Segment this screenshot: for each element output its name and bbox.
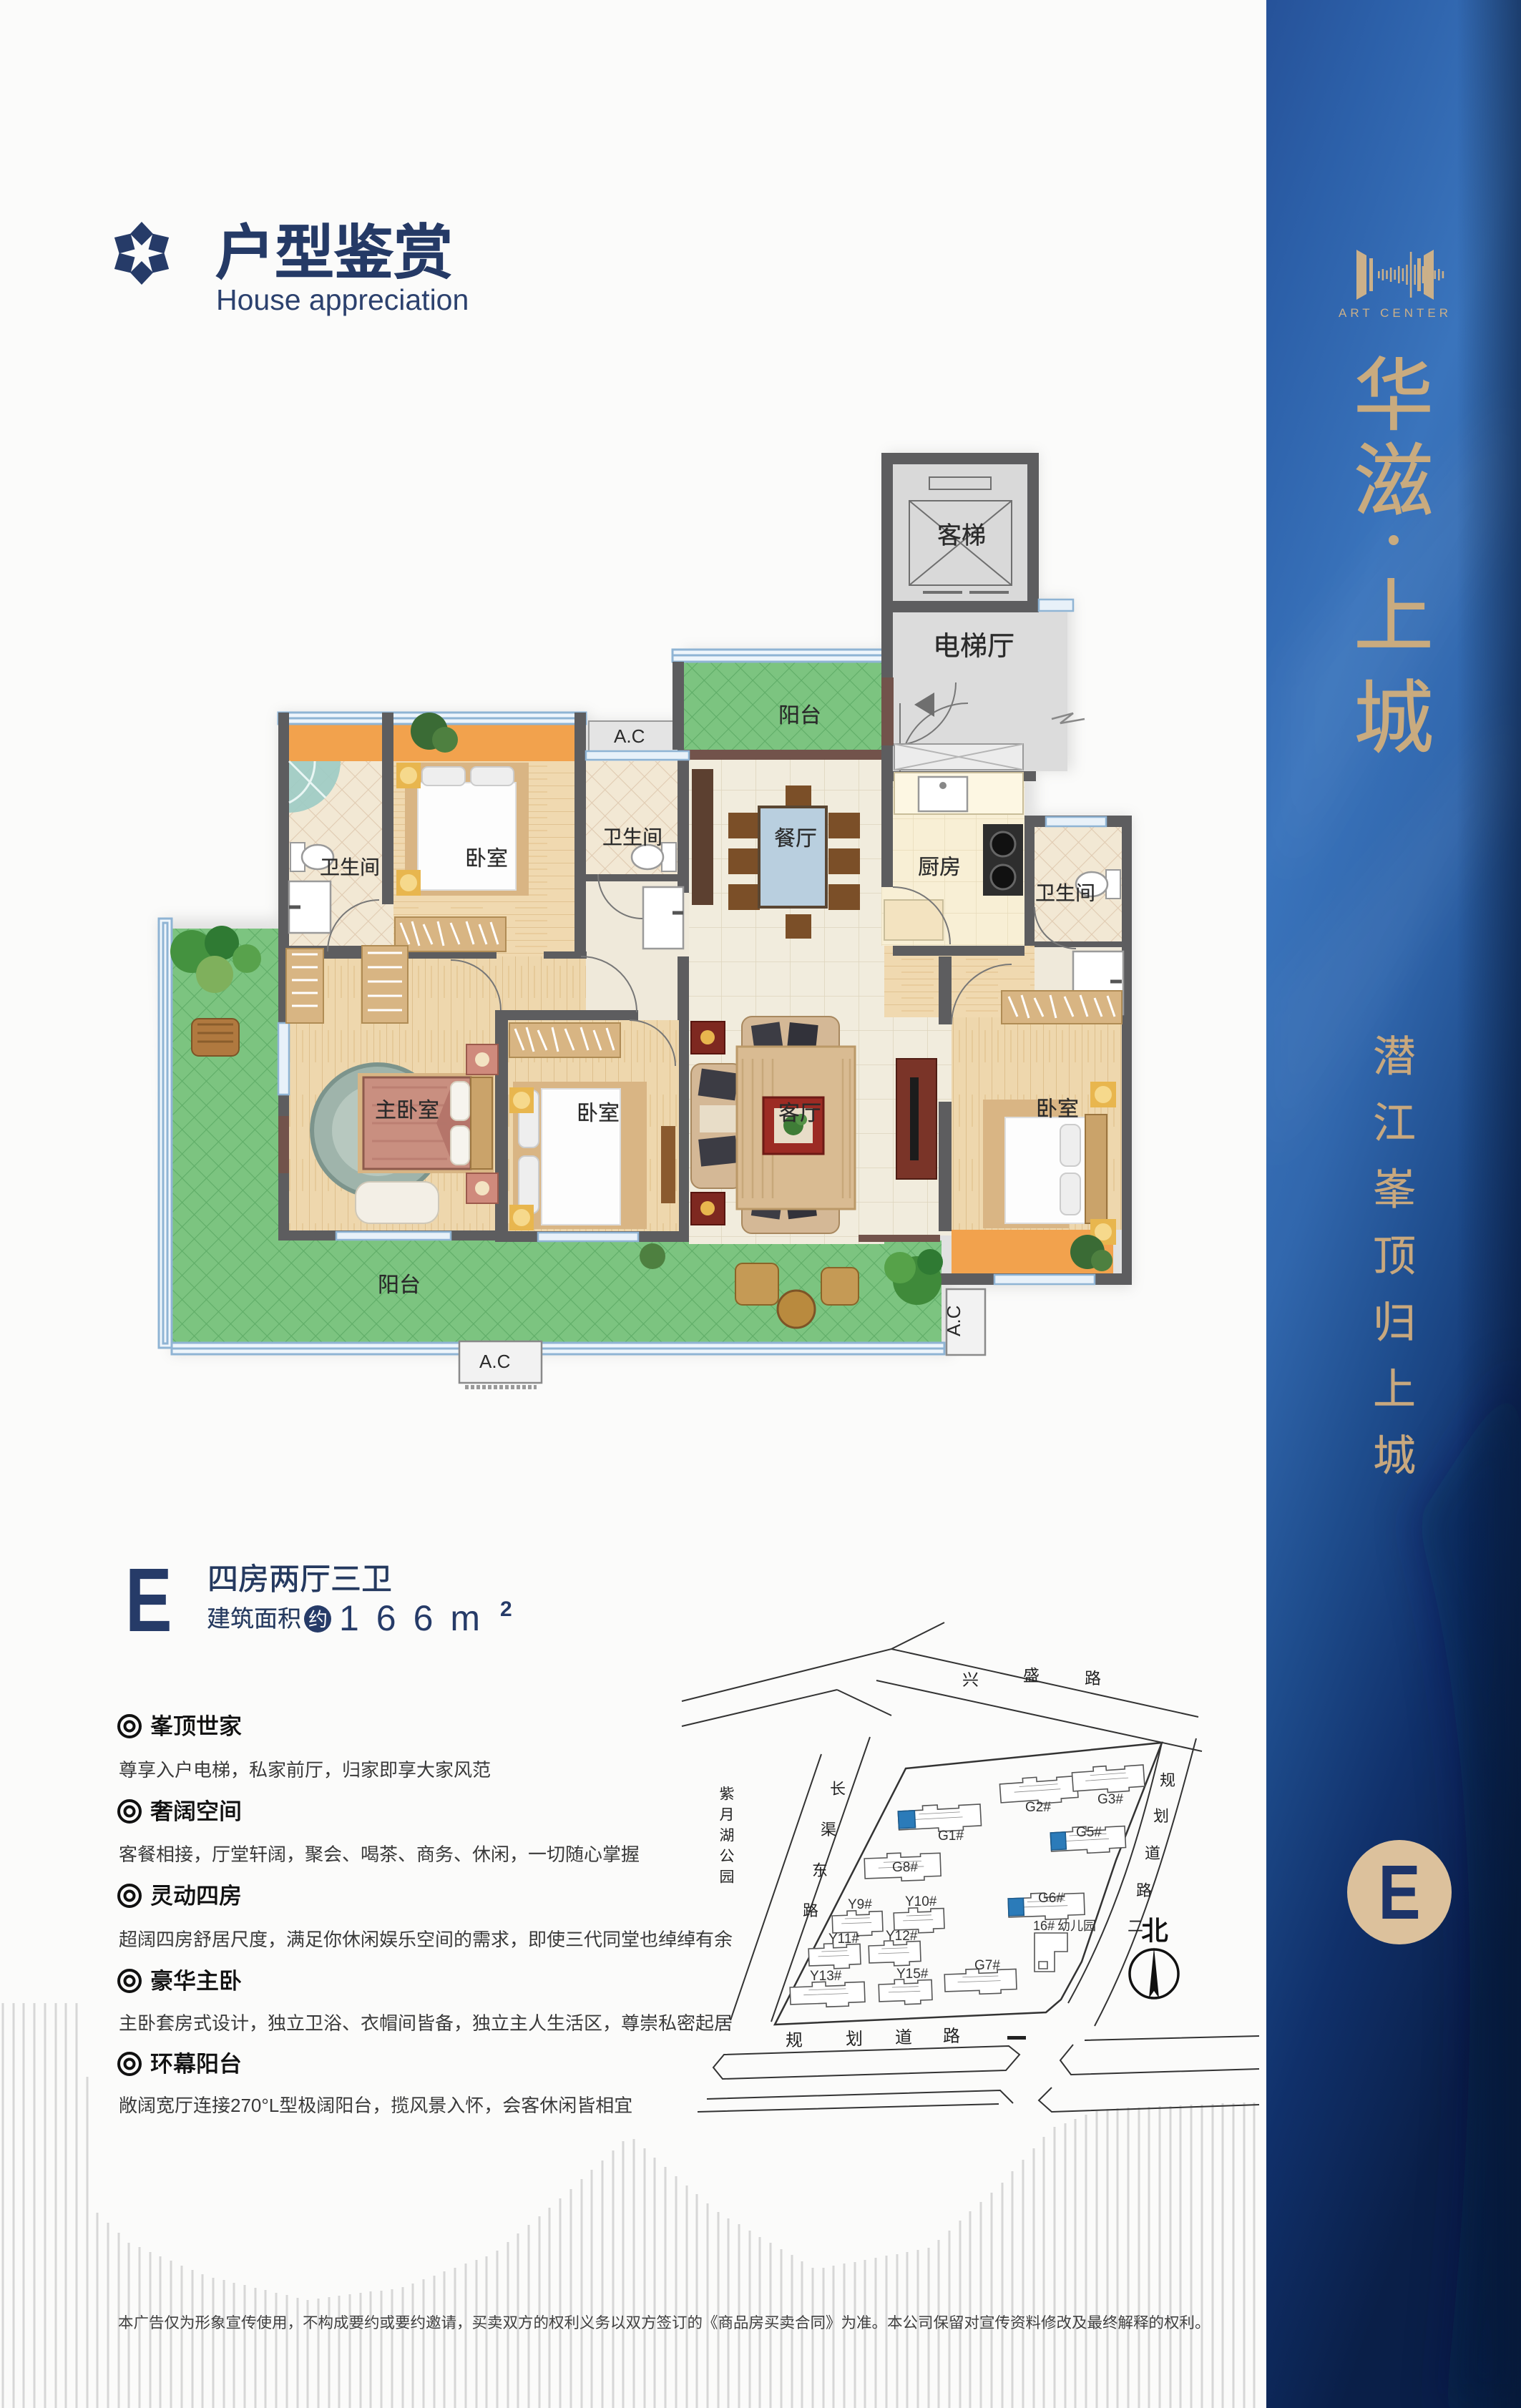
- svg-text:Y12#: Y12#: [886, 1929, 918, 1944]
- svg-text:166m: 166m: [339, 1598, 497, 1638]
- svg-text:ART CENTER: ART CENTER: [1339, 306, 1452, 320]
- svg-text:A.C: A.C: [479, 1351, 510, 1372]
- svg-text:G6#: G6#: [1038, 1891, 1064, 1906]
- svg-text:G2#: G2#: [1025, 1800, 1051, 1815]
- svg-text:Y11#: Y11#: [828, 1932, 859, 1947]
- svg-text:Y9#: Y9#: [848, 1897, 872, 1912]
- svg-text:16#: 16#: [1033, 1919, 1055, 1933]
- svg-text:E: E: [125, 1550, 172, 1650]
- svg-text:2: 2: [500, 1597, 512, 1621]
- svg-text:Y13#: Y13#: [810, 1969, 842, 1984]
- svg-text:Y15#: Y15#: [896, 1967, 929, 1982]
- svg-text:G5#: G5#: [1076, 1825, 1102, 1840]
- svg-text:Y10#: Y10#: [905, 1894, 937, 1909]
- svg-text:A.C: A.C: [943, 1306, 964, 1336]
- svg-text:G7#: G7#: [974, 1958, 1000, 1973]
- svg-text:G8#: G8#: [892, 1860, 918, 1875]
- svg-text:270°L: 270°L: [230, 2095, 279, 2116]
- svg-text:A.C: A.C: [614, 725, 645, 747]
- svg-text:E: E: [1378, 1849, 1420, 1935]
- svg-text:G1#: G1#: [938, 1829, 964, 1844]
- svg-text:G3#: G3#: [1097, 1792, 1123, 1807]
- svg-text:House appreciation: House appreciation: [216, 283, 469, 316]
